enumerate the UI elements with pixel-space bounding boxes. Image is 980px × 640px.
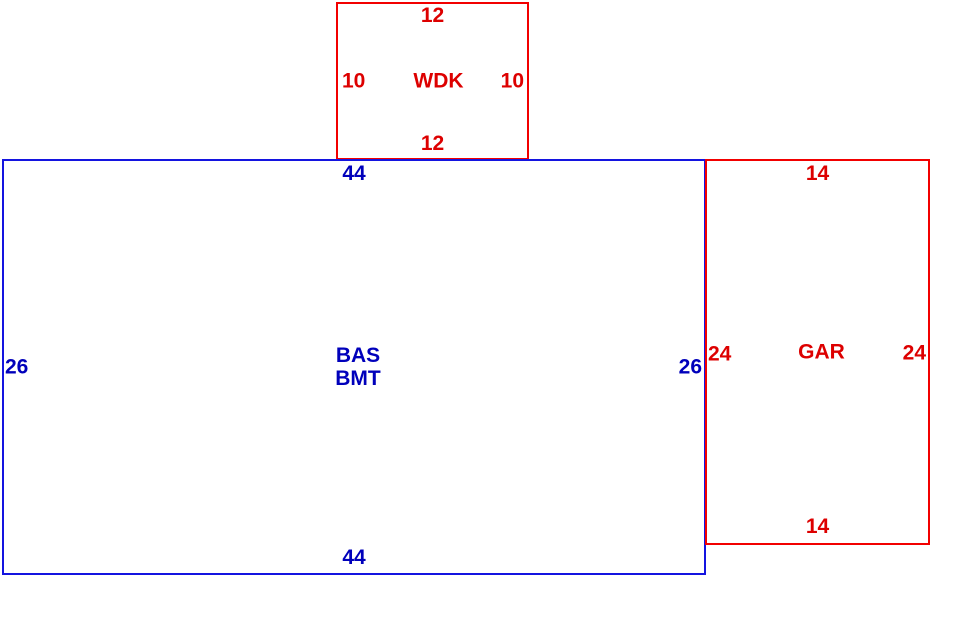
bas-label-line2: BMT: [335, 367, 381, 390]
gar-dim-right: 24: [903, 342, 926, 365]
room-gar: 14 24 GAR 24 14: [705, 159, 930, 545]
gar-dim-left: 24: [708, 343, 731, 366]
gar-dim-bottom: 14: [806, 515, 829, 538]
bas-label-line1: BAS: [335, 344, 381, 367]
bas-dim-bottom: 44: [342, 546, 365, 569]
wdk-dim-right: 10: [501, 70, 524, 93]
floor-plan-sketch: 12 10 WDK 10 12 44 26 BASBMT 26 44 14 24…: [0, 0, 980, 640]
gar-label: GAR: [798, 341, 845, 364]
wdk-dim-left: 10: [342, 70, 365, 93]
bas-label: BASBMT: [335, 344, 381, 390]
wdk-label: WDK: [413, 70, 463, 93]
wdk-dim-top: 12: [421, 4, 444, 27]
bas-dim-left: 26: [5, 356, 28, 379]
gar-dim-top: 14: [806, 162, 829, 185]
bas-dim-top: 44: [342, 162, 365, 185]
room-wdk: 12 10 WDK 10 12: [336, 2, 529, 160]
room-bas-bmt: 44 26 BASBMT 26 44: [2, 159, 706, 575]
wdk-dim-bottom: 12: [421, 132, 444, 155]
bas-dim-right: 26: [679, 356, 702, 379]
